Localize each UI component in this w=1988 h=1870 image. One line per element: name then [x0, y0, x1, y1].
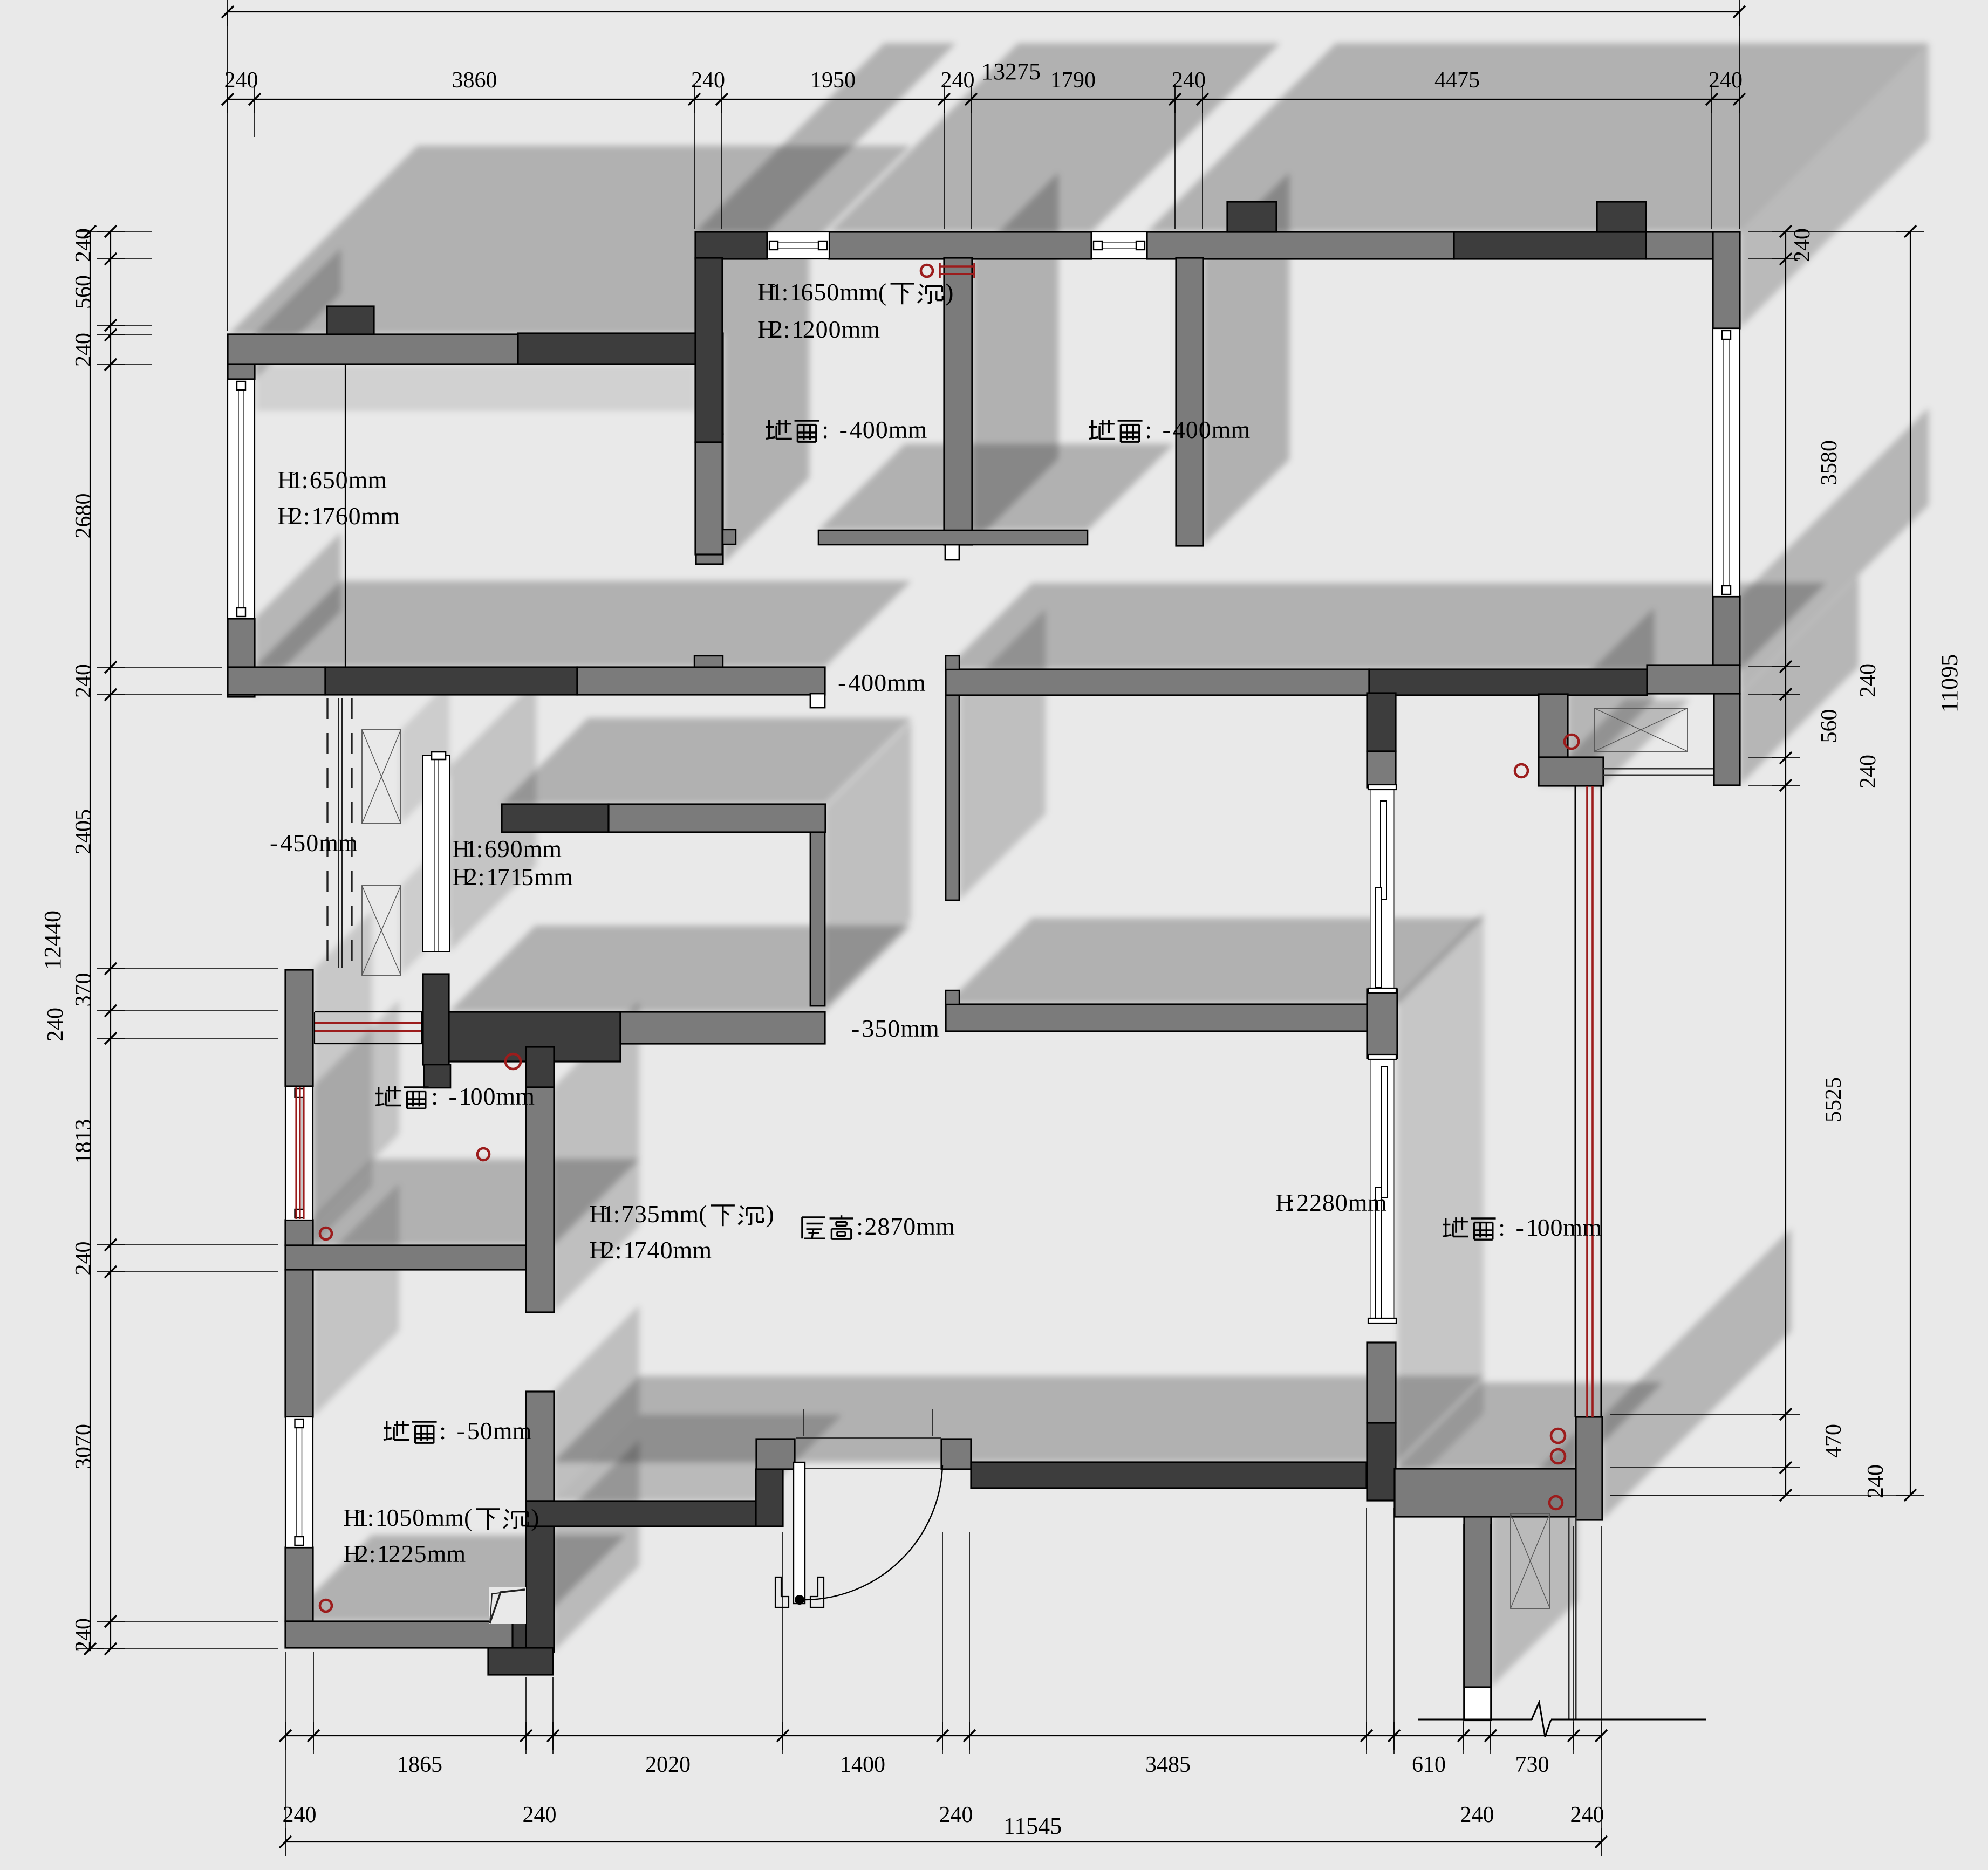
svg-text:0: 0 — [826, 278, 839, 306]
svg-text:240: 240 — [1460, 1803, 1494, 1827]
svg-text:m: m — [935, 1213, 955, 1240]
svg-text:m: m — [319, 829, 338, 857]
svg-text:-: - — [1516, 1214, 1524, 1241]
svg-text:2: 2 — [865, 1213, 877, 1240]
svg-text:m: m — [673, 1236, 693, 1264]
svg-text:m: m — [920, 1015, 939, 1042]
svg-text:m: m — [425, 1504, 445, 1531]
svg-text:1: 1 — [375, 1504, 388, 1531]
svg-text:m: m — [445, 1504, 464, 1531]
svg-text:5: 5 — [414, 1540, 427, 1567]
svg-text:13275: 13275 — [981, 58, 1041, 85]
svg-text:m: m — [1231, 416, 1251, 443]
svg-text:3: 3 — [634, 1200, 647, 1228]
svg-text:(: ( — [699, 1200, 707, 1228]
svg-text:-: - — [457, 1417, 465, 1444]
svg-text:3580: 3580 — [1817, 440, 1842, 485]
svg-text:m: m — [349, 466, 368, 494]
svg-text:m: m — [554, 863, 573, 891]
svg-text:-: - — [851, 1015, 859, 1042]
svg-text:m: m — [842, 316, 861, 343]
svg-text:0: 0 — [1335, 1189, 1348, 1216]
svg-text:1: 1 — [791, 316, 804, 343]
svg-text:0: 0 — [470, 1083, 483, 1110]
svg-text:1790: 1790 — [1050, 68, 1096, 93]
svg-text:610: 610 — [1412, 1752, 1446, 1777]
svg-text:m: m — [534, 863, 554, 891]
svg-text:m: m — [679, 1200, 699, 1228]
svg-text:240: 240 — [1856, 755, 1881, 789]
svg-text:3485: 3485 — [1145, 1752, 1191, 1777]
svg-text:5: 5 — [647, 1200, 660, 1228]
svg-text:0: 0 — [387, 1504, 399, 1531]
svg-text:240: 240 — [43, 1008, 68, 1042]
svg-text:4: 4 — [850, 416, 862, 443]
svg-text:240: 240 — [939, 1803, 973, 1827]
svg-text:0: 0 — [483, 1083, 496, 1110]
svg-text::: : — [303, 502, 310, 530]
svg-text:m: m — [523, 835, 543, 862]
svg-text:4: 4 — [280, 829, 292, 857]
svg-text:-: - — [1163, 416, 1171, 443]
svg-text:2: 2 — [290, 502, 303, 530]
svg-text::: : — [367, 1504, 374, 1531]
svg-text:2: 2 — [388, 1540, 401, 1567]
svg-text:470: 470 — [1821, 1424, 1846, 1458]
svg-text:9: 9 — [497, 835, 510, 862]
svg-text:): ) — [945, 278, 953, 306]
svg-text:240: 240 — [1709, 68, 1743, 93]
svg-text:560: 560 — [1817, 709, 1842, 743]
svg-text:1: 1 — [790, 278, 802, 306]
svg-text:0: 0 — [816, 316, 828, 343]
svg-text:0: 0 — [412, 1504, 425, 1531]
svg-text:11095: 11095 — [1936, 654, 1963, 713]
svg-text:m: m — [906, 669, 926, 696]
svg-text::: : — [1145, 416, 1152, 443]
svg-text:-: - — [839, 416, 848, 443]
svg-text:m: m — [860, 316, 880, 343]
svg-text:240: 240 — [941, 68, 975, 93]
svg-text:2: 2 — [770, 316, 783, 343]
svg-text:m: m — [900, 1015, 920, 1042]
svg-text:2: 2 — [803, 316, 815, 343]
svg-text::: : — [1498, 1214, 1505, 1241]
svg-text:m: m — [889, 416, 908, 443]
svg-text::: : — [822, 416, 829, 443]
svg-text:4: 4 — [647, 1236, 660, 1264]
svg-text:m: m — [859, 278, 878, 306]
svg-text:1950: 1950 — [810, 68, 856, 93]
svg-text:0: 0 — [1186, 416, 1198, 443]
svg-text:560: 560 — [71, 275, 96, 309]
svg-text:(: ( — [878, 278, 886, 306]
svg-text:1: 1 — [510, 863, 523, 891]
svg-text:6: 6 — [336, 502, 348, 530]
svg-text:0: 0 — [903, 1213, 916, 1240]
svg-text:370: 370 — [71, 973, 96, 1007]
svg-text::: : — [439, 1417, 446, 1444]
svg-text:0: 0 — [349, 502, 361, 530]
svg-text:8: 8 — [877, 1213, 890, 1240]
svg-text:6: 6 — [801, 278, 814, 306]
svg-text:1: 1 — [486, 863, 498, 891]
svg-text:8: 8 — [1322, 1189, 1335, 1216]
svg-text:240: 240 — [523, 1803, 557, 1827]
svg-text:1813: 1813 — [71, 1119, 96, 1165]
svg-text:5: 5 — [467, 1417, 480, 1444]
svg-text:240: 240 — [1863, 1464, 1888, 1498]
svg-text:m: m — [338, 829, 358, 857]
svg-text:240: 240 — [224, 68, 258, 93]
svg-text:1: 1 — [311, 502, 324, 530]
svg-text:1: 1 — [602, 1200, 614, 1228]
svg-text:240: 240 — [1570, 1803, 1604, 1827]
svg-text:2: 2 — [356, 1540, 368, 1567]
svg-text:0: 0 — [1199, 416, 1211, 443]
svg-text:5: 5 — [399, 1504, 412, 1531]
svg-text:1400: 1400 — [840, 1752, 885, 1777]
svg-text:m: m — [1368, 1189, 1387, 1216]
svg-text:m: m — [839, 278, 859, 306]
svg-text:-: - — [449, 1083, 457, 1110]
svg-text:0: 0 — [480, 1417, 493, 1444]
svg-text:0: 0 — [829, 316, 841, 343]
svg-text:0: 0 — [874, 669, 886, 696]
svg-text:1: 1 — [1526, 1214, 1539, 1241]
svg-text:4: 4 — [1173, 416, 1185, 443]
svg-text:m: m — [1563, 1214, 1582, 1241]
svg-text:0: 0 — [306, 829, 318, 857]
svg-text:0: 0 — [876, 416, 888, 443]
svg-text:6: 6 — [310, 466, 322, 494]
svg-text:240: 240 — [71, 1242, 96, 1276]
svg-text:7: 7 — [323, 502, 335, 530]
svg-text:2: 2 — [1309, 1189, 1322, 1216]
svg-text:7: 7 — [621, 1200, 634, 1228]
svg-text::: : — [369, 1540, 376, 1567]
svg-text:1: 1 — [459, 1083, 472, 1110]
svg-text:240: 240 — [1856, 663, 1881, 697]
svg-text:0: 0 — [510, 835, 523, 862]
svg-text:7: 7 — [634, 1236, 647, 1264]
svg-text:5: 5 — [293, 829, 305, 857]
svg-text:-: - — [838, 669, 846, 696]
svg-text:m: m — [1348, 1189, 1368, 1216]
svg-text:0: 0 — [1550, 1214, 1563, 1241]
svg-text:1: 1 — [290, 466, 303, 494]
svg-text::: : — [476, 835, 483, 862]
svg-text:6: 6 — [484, 835, 497, 862]
svg-text::: : — [478, 863, 485, 891]
svg-text:240: 240 — [1790, 228, 1815, 262]
svg-text:): ) — [766, 1200, 774, 1228]
svg-text:240: 240 — [71, 1618, 96, 1652]
svg-text:5525: 5525 — [1821, 1077, 1846, 1122]
svg-text:4: 4 — [848, 669, 860, 696]
svg-text::: : — [431, 1083, 438, 1110]
svg-text:240: 240 — [283, 1803, 317, 1827]
svg-text:2: 2 — [1296, 1189, 1309, 1216]
svg-text::: : — [302, 466, 309, 494]
svg-text:0: 0 — [887, 1015, 900, 1042]
svg-text:2680: 2680 — [71, 494, 96, 539]
svg-text:12440: 12440 — [39, 910, 66, 970]
svg-text:5: 5 — [323, 466, 335, 494]
svg-text:240: 240 — [71, 228, 96, 262]
svg-text:1: 1 — [377, 1540, 390, 1567]
svg-text:-: - — [270, 829, 278, 857]
svg-text:m: m — [515, 1083, 535, 1110]
svg-text:240: 240 — [691, 68, 725, 93]
svg-text:7: 7 — [890, 1213, 903, 1240]
svg-text:3070: 3070 — [71, 1424, 96, 1469]
svg-text:2: 2 — [602, 1236, 614, 1264]
svg-text:0: 0 — [861, 669, 873, 696]
svg-text:5: 5 — [814, 278, 826, 306]
svg-text:m: m — [513, 1417, 532, 1444]
svg-text:240: 240 — [1172, 68, 1206, 93]
svg-text::: : — [783, 316, 790, 343]
svg-text:2405: 2405 — [71, 809, 96, 854]
svg-text:m: m — [908, 416, 927, 443]
svg-text:1865: 1865 — [397, 1752, 442, 1777]
svg-text:240: 240 — [71, 333, 96, 367]
svg-text:m: m — [1212, 416, 1231, 443]
svg-text:0: 0 — [863, 416, 875, 443]
svg-text:m: m — [446, 1540, 466, 1567]
svg-text::: : — [613, 1200, 620, 1228]
svg-text:7: 7 — [497, 863, 510, 891]
svg-text::: : — [615, 1236, 622, 1264]
svg-text:m: m — [427, 1540, 447, 1567]
svg-text:5: 5 — [521, 863, 534, 891]
svg-text:5: 5 — [875, 1015, 887, 1042]
svg-text:2: 2 — [401, 1540, 414, 1567]
svg-text:m: m — [887, 669, 906, 696]
svg-text:m: m — [380, 502, 400, 530]
svg-text:m: m — [1582, 1214, 1602, 1241]
svg-text:2: 2 — [465, 863, 477, 891]
svg-text:2020: 2020 — [645, 1752, 691, 1777]
svg-text:1: 1 — [770, 278, 783, 306]
svg-text::: : — [1288, 1189, 1295, 1216]
svg-text:1: 1 — [356, 1504, 368, 1531]
svg-text::: : — [782, 278, 789, 306]
svg-text:730: 730 — [1515, 1752, 1549, 1777]
svg-text:240: 240 — [71, 664, 96, 698]
svg-text:3860: 3860 — [452, 68, 497, 93]
svg-text:m: m — [916, 1213, 935, 1240]
svg-text:4475: 4475 — [1434, 68, 1480, 93]
svg-text:m: m — [367, 466, 387, 494]
svg-text:m: m — [493, 1417, 513, 1444]
svg-text::: : — [856, 1213, 863, 1240]
svg-text:(: ( — [464, 1504, 472, 1531]
svg-text:0: 0 — [1538, 1214, 1550, 1241]
svg-text:m: m — [692, 1236, 712, 1264]
svg-text:0: 0 — [336, 466, 348, 494]
svg-text:1: 1 — [465, 835, 477, 862]
svg-text:m: m — [660, 1200, 680, 1228]
svg-text:m: m — [361, 502, 381, 530]
svg-text:1: 1 — [623, 1236, 636, 1264]
svg-text:m: m — [542, 835, 562, 862]
svg-text:3: 3 — [862, 1015, 874, 1042]
svg-text:): ) — [531, 1504, 539, 1531]
svg-text:11545: 11545 — [1003, 1813, 1062, 1839]
svg-text:0: 0 — [660, 1236, 673, 1264]
svg-text:m: m — [496, 1083, 515, 1110]
